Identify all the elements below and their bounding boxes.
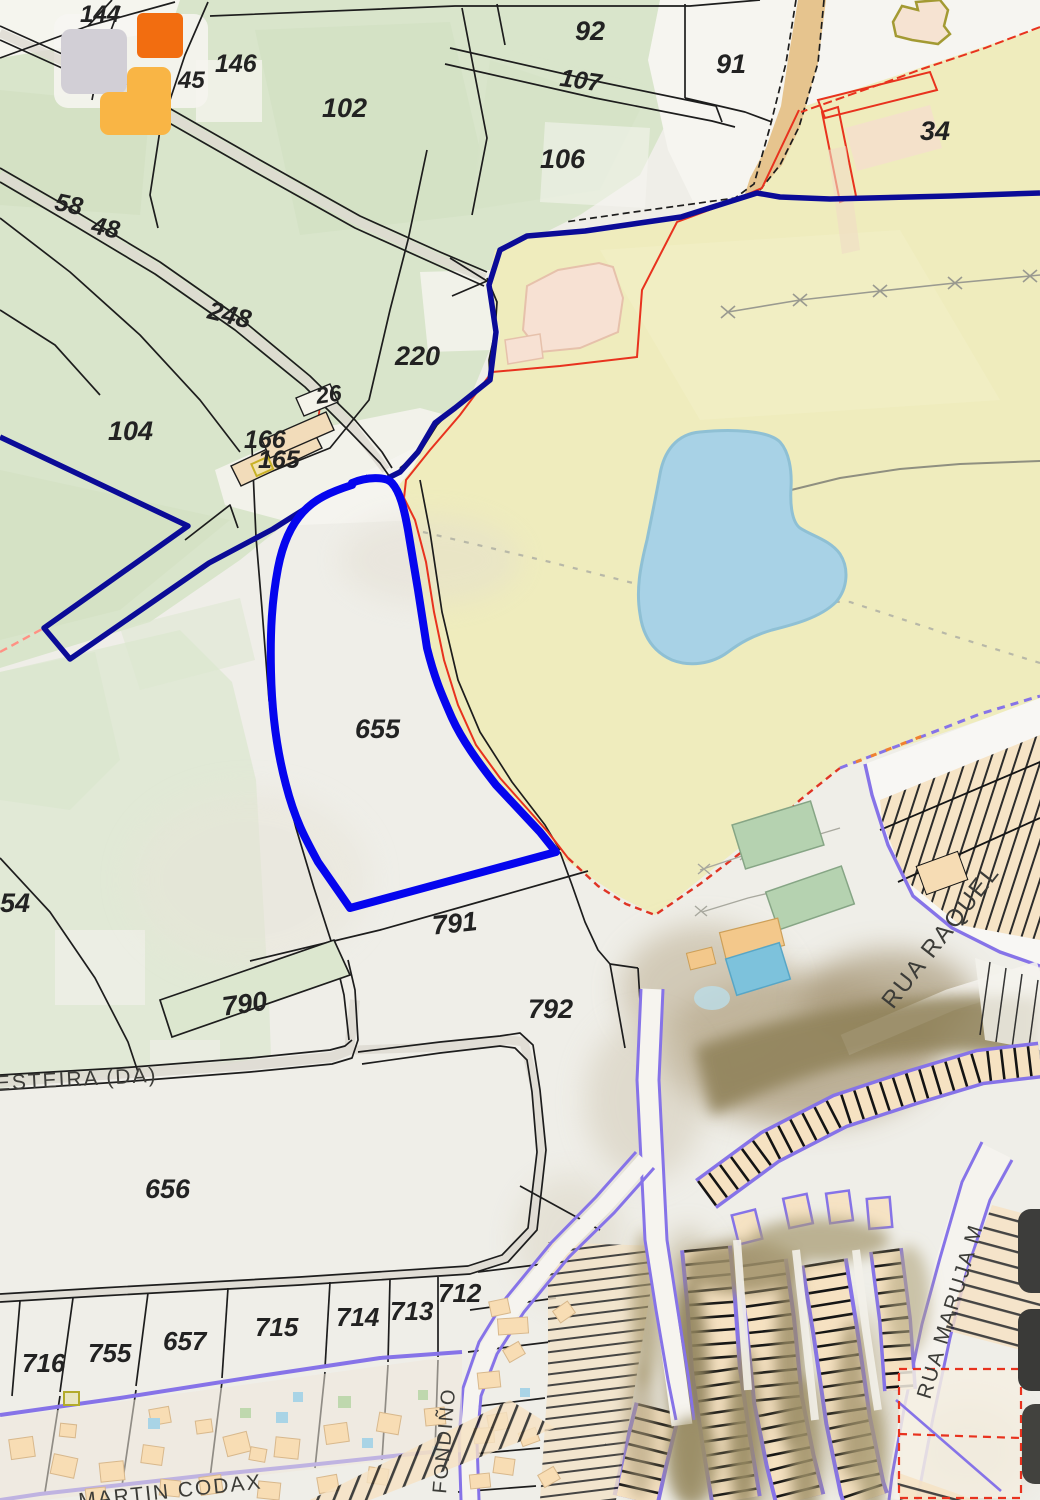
svg-text:712: 712 xyxy=(438,1278,482,1308)
svg-text:755: 755 xyxy=(88,1338,132,1368)
svg-text:792: 792 xyxy=(528,994,573,1024)
svg-text:102: 102 xyxy=(322,93,367,123)
svg-text:106: 106 xyxy=(540,144,586,174)
svg-text:656: 656 xyxy=(145,1174,191,1204)
svg-text:54: 54 xyxy=(0,888,30,918)
svg-text:48: 48 xyxy=(88,211,122,244)
svg-text:657: 657 xyxy=(163,1326,208,1356)
svg-text:26: 26 xyxy=(313,379,343,408)
svg-text:714: 714 xyxy=(336,1302,380,1332)
svg-text:34: 34 xyxy=(920,116,950,146)
svg-text:104: 104 xyxy=(108,416,153,446)
svg-text:45: 45 xyxy=(177,67,205,94)
svg-text:58: 58 xyxy=(52,188,85,221)
svg-text:91: 91 xyxy=(716,49,746,79)
svg-text:144: 144 xyxy=(80,1,120,28)
svg-text:146: 146 xyxy=(215,50,258,78)
svg-text:655: 655 xyxy=(355,714,401,744)
svg-text:716: 716 xyxy=(22,1348,66,1378)
svg-text:790: 790 xyxy=(220,986,269,1022)
svg-text:107: 107 xyxy=(558,64,604,98)
svg-text:220: 220 xyxy=(394,341,440,371)
svg-text:165: 165 xyxy=(258,446,301,474)
svg-text:791: 791 xyxy=(431,906,479,941)
svg-text:715: 715 xyxy=(255,1312,299,1342)
svg-text:713: 713 xyxy=(390,1296,434,1326)
svg-text:92: 92 xyxy=(575,16,605,46)
